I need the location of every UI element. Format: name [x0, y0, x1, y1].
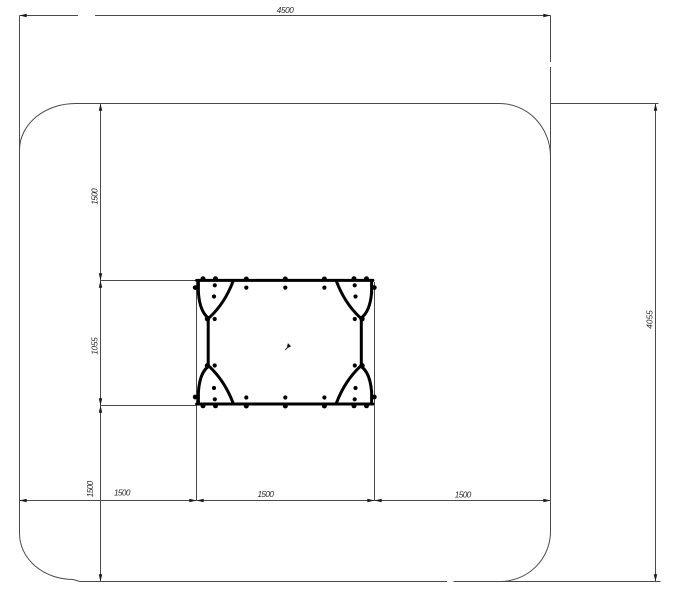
svg-text:1500: 1500	[114, 489, 131, 498]
svg-text:1500: 1500	[257, 490, 274, 499]
svg-text:1500: 1500	[86, 480, 95, 497]
svg-text:4500: 4500	[277, 6, 294, 15]
svg-text:1500: 1500	[455, 491, 472, 500]
svg-text:4055: 4055	[646, 310, 655, 329]
svg-text:1500: 1500	[91, 188, 100, 205]
svg-text:1055: 1055	[91, 337, 100, 355]
